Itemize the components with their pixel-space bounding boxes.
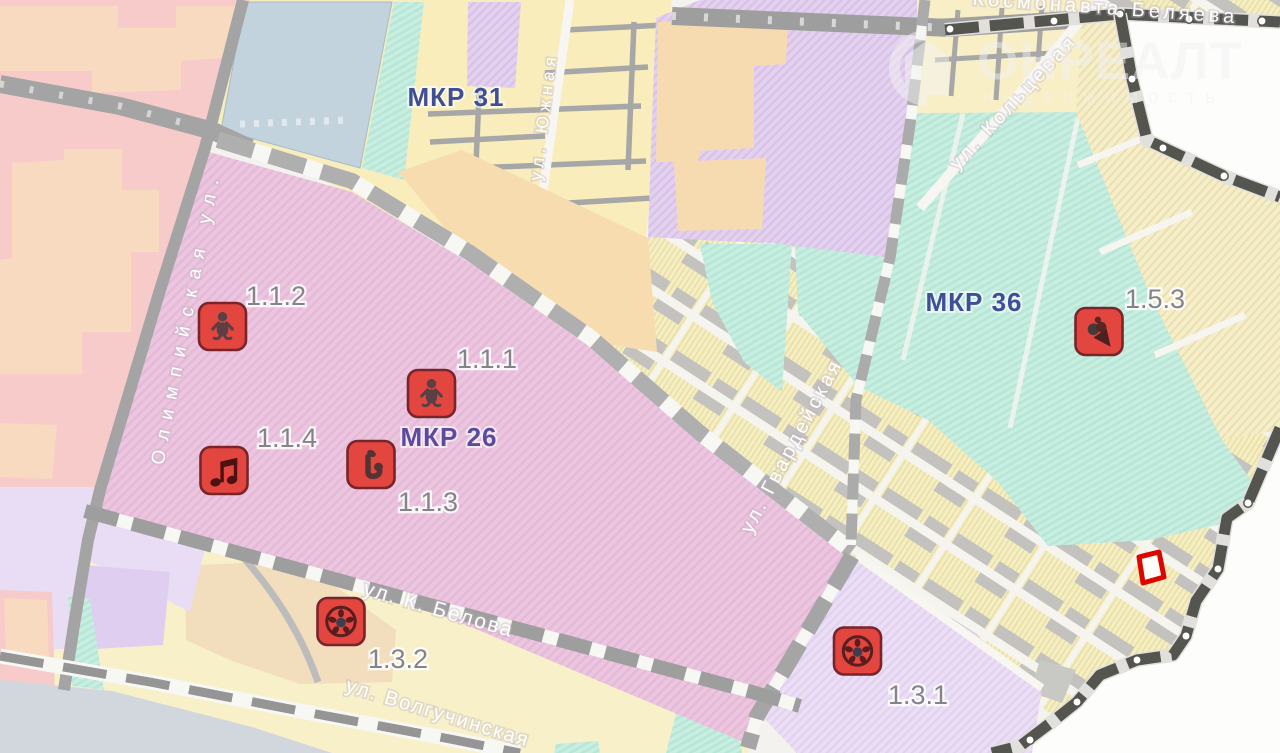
svg-text:МКР 36: МКР 36 bbox=[925, 287, 1022, 317]
svg-text:1.5.3: 1.5.3 bbox=[1125, 284, 1185, 314]
svg-text:1.1.2: 1.1.2 bbox=[246, 281, 306, 311]
svg-text:недвижимость: недвижимость bbox=[983, 87, 1225, 108]
svg-text:1.1.3: 1.1.3 bbox=[398, 487, 458, 517]
svg-text:ОНРЕАЛТ: ОНРЕАЛТ bbox=[977, 32, 1243, 91]
svg-text:1.3.1: 1.3.1 bbox=[888, 680, 948, 710]
svg-text:1.1.1: 1.1.1 bbox=[457, 344, 517, 374]
svg-text:1.1.4: 1.1.4 bbox=[257, 423, 317, 453]
svg-text:МКР 31: МКР 31 bbox=[407, 82, 504, 112]
svg-text:1.3.2: 1.3.2 bbox=[368, 644, 428, 674]
svg-text:МКР 26: МКР 26 bbox=[400, 422, 497, 452]
